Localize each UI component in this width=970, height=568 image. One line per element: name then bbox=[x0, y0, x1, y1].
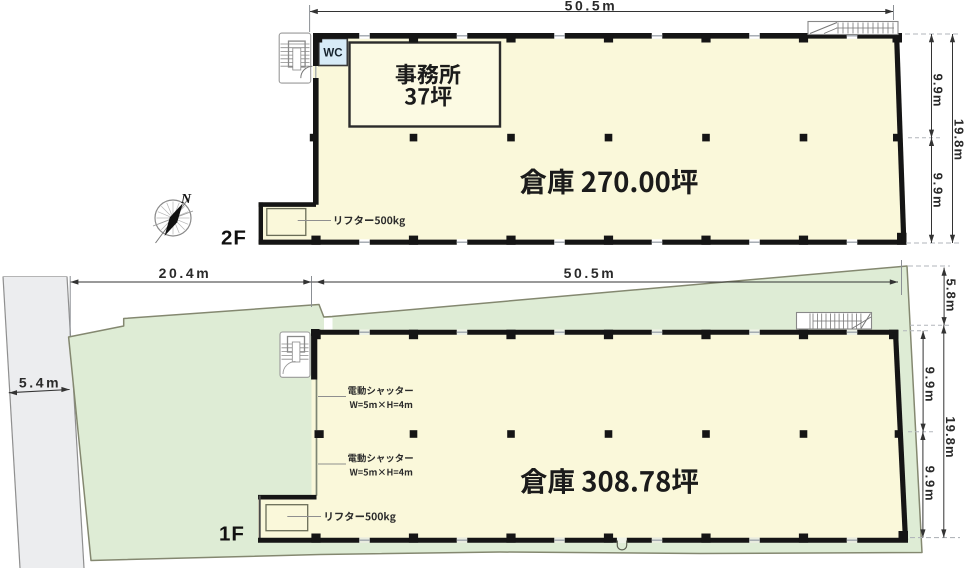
svg-text:50.5m: 50.5m bbox=[564, 265, 617, 281]
svg-text:20.4m: 20.4m bbox=[159, 265, 212, 281]
svg-text:1F: 1F bbox=[219, 523, 245, 546]
svg-text:9.9m: 9.9m bbox=[923, 466, 938, 503]
svg-text:WC: WC bbox=[323, 48, 342, 60]
svg-text:2F: 2F bbox=[221, 227, 247, 250]
svg-text:50.5m: 50.5m bbox=[565, 0, 618, 13]
svg-text:19.8m: 19.8m bbox=[952, 119, 967, 161]
svg-text:N: N bbox=[180, 192, 192, 207]
svg-text:9.9m: 9.9m bbox=[931, 173, 946, 210]
svg-text:5.4m: 5.4m bbox=[19, 375, 61, 391]
svg-text:19.8m: 19.8m bbox=[943, 416, 958, 458]
svg-text:9.9m: 9.9m bbox=[923, 367, 938, 404]
svg-text:9.9m: 9.9m bbox=[931, 73, 946, 107]
svg-text:5.8m: 5.8m bbox=[944, 278, 959, 312]
